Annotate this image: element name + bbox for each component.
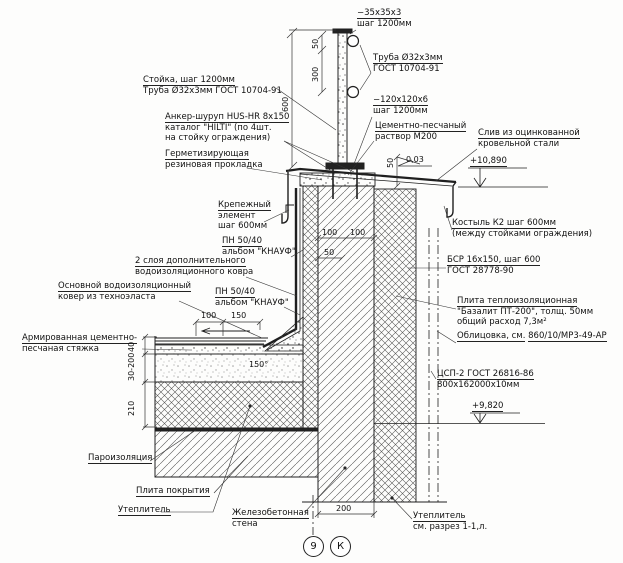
handrail-pipe-top [348, 36, 359, 47]
leveling-screed [155, 354, 303, 382]
parapet-inner-insulation [303, 186, 318, 430]
label-insulation-left: Утеплитель [118, 505, 171, 516]
dim-angle-150: 150° [249, 360, 268, 369]
dim-150-roof: 150 [231, 311, 246, 320]
label-post: Стойка, шаг 1200мм Труба Ø32x3мм ГОСТ 10… [143, 75, 282, 96]
label-vapor-barrier: Пароизоляция [88, 453, 152, 464]
label-crutch: Костыль К2 шаг 600мм (между стойками огр… [452, 218, 592, 239]
label-rubber-gasket: Герметизирующая резиновая прокладка [165, 149, 263, 170]
label-drip-flashing: Слив из оцинкованной кровельной стали [478, 128, 580, 149]
label-pn-profile-1: ПН 50/40 альбом "КНАУФ" [222, 236, 296, 257]
label-fastener: Крепежный элемент шаг 600мм [218, 200, 271, 231]
dim-100-a: 100 [322, 228, 337, 237]
coping-left-apron [282, 172, 288, 223]
cladding-lines [429, 228, 438, 502]
dim-40: 40 [127, 342, 136, 352]
dim-100-roof: 100 [201, 311, 216, 320]
label-reinforced-screed: Армированная цементно- песчаная стяжка [22, 333, 137, 354]
label-anchor-screw: Анкер-шуруп HUS-HR 8x150 каталог "HILTI"… [165, 112, 289, 143]
level-mark-top [468, 168, 527, 187]
outer-insulation [374, 189, 416, 502]
label-cladding: Облицовка, см. 860/10/МР3-49-АР [457, 331, 607, 342]
dim-210: 210 [127, 401, 136, 416]
label-slope: 0,03 [406, 155, 424, 164]
label-insulation-right: Утеплитель см. разрез 1-1,л. [413, 511, 487, 532]
dim-100-b: 100 [350, 228, 365, 237]
label-mortar: Цементно-песчаный раствор М200 [375, 121, 466, 142]
handrail-pipe-mid [348, 87, 359, 98]
deck-slab [155, 431, 318, 477]
post-cap-plate [333, 29, 352, 33]
label-cap-plate: −35x35x3 шаг 1200мм [357, 8, 412, 29]
carpet-direction-arrow [202, 328, 250, 334]
roof-insulation-layer [155, 382, 303, 428]
label-thermo-plate: Плита теплоизоляционная "Базалит ПТ-200"… [457, 296, 593, 327]
axis-marker-k: К [330, 536, 351, 557]
main-carpet-lines [155, 338, 268, 344]
parapet-structure [300, 173, 438, 502]
label-concrete-wall: Железобетонная стена [232, 508, 309, 529]
level-mark-mid [470, 413, 520, 423]
label-level-top: +10,890 [470, 156, 507, 167]
label-level-mid: +9,820 [472, 401, 503, 412]
label-deck-slab: Плита покрытия [136, 486, 210, 497]
dim-50-wall: 50 [324, 248, 334, 257]
label-csp-board: ЦСП-2 ГОСТ 26816-86 800x162000x10мм [437, 369, 534, 390]
dim-200: 200 [336, 504, 351, 513]
dim-300: 300 [311, 67, 320, 82]
drip-edge [447, 182, 456, 217]
railing-post [338, 33, 347, 163]
label-pipe-top: Труба Ø32x3мм ГОСТ 10704-91 [373, 53, 443, 74]
dim-30-200: 30-200 [127, 353, 136, 381]
label-main-carpet: Основной водоизоляционный ковер из техно… [58, 281, 191, 302]
dim-50-top: 50 [311, 39, 320, 49]
label-pn-profile-2: ПН 50/40 альбом "КНАУФ" [215, 287, 289, 308]
axis-marker-9: 9 [303, 536, 324, 557]
drawing-sheet: −35x35x3 шаг 1200мм Труба Ø32x3мм ГОСТ 1… [0, 0, 623, 563]
dim-600: 600 [281, 97, 290, 112]
roof-layers [155, 328, 318, 477]
fastener-bracket [286, 205, 294, 213]
dim-50-coping: 50 [386, 158, 395, 168]
label-base-plate: −120x120x6 шаг 1200мм [373, 95, 428, 116]
label-extra-carpet: 2 слоя дополнительного водоизоляционного… [135, 256, 253, 277]
label-bsr-anchor: БСР 16x150, шаг 600 ГОСТ 28778-90 [447, 255, 540, 276]
